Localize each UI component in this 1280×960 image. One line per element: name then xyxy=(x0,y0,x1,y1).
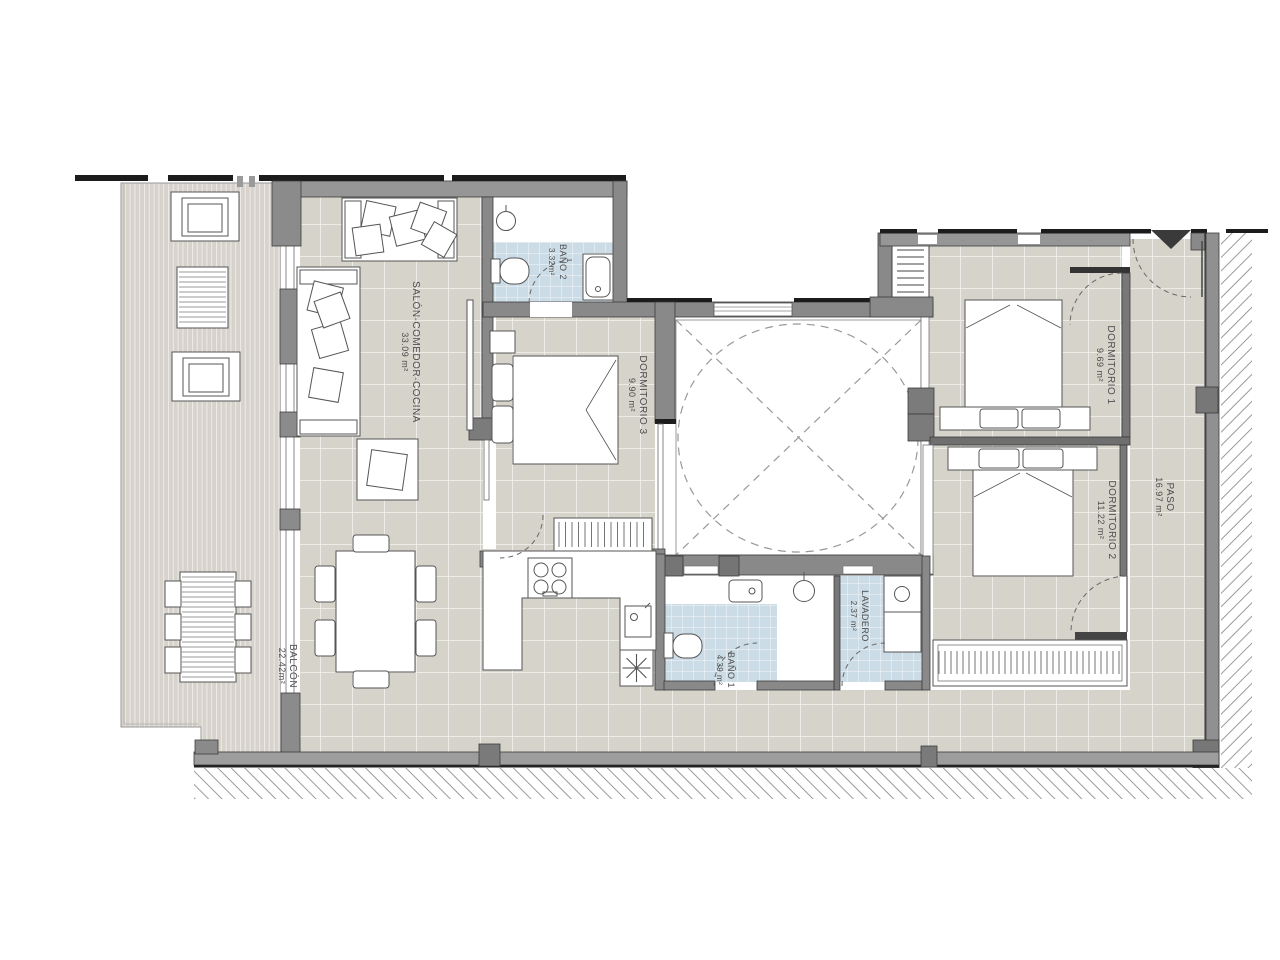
svg-text:PASO16.97 m²: PASO16.97 m² xyxy=(1154,477,1175,517)
svg-text:BALCÓN22.42m²: BALCÓN22.42m² xyxy=(277,644,300,688)
